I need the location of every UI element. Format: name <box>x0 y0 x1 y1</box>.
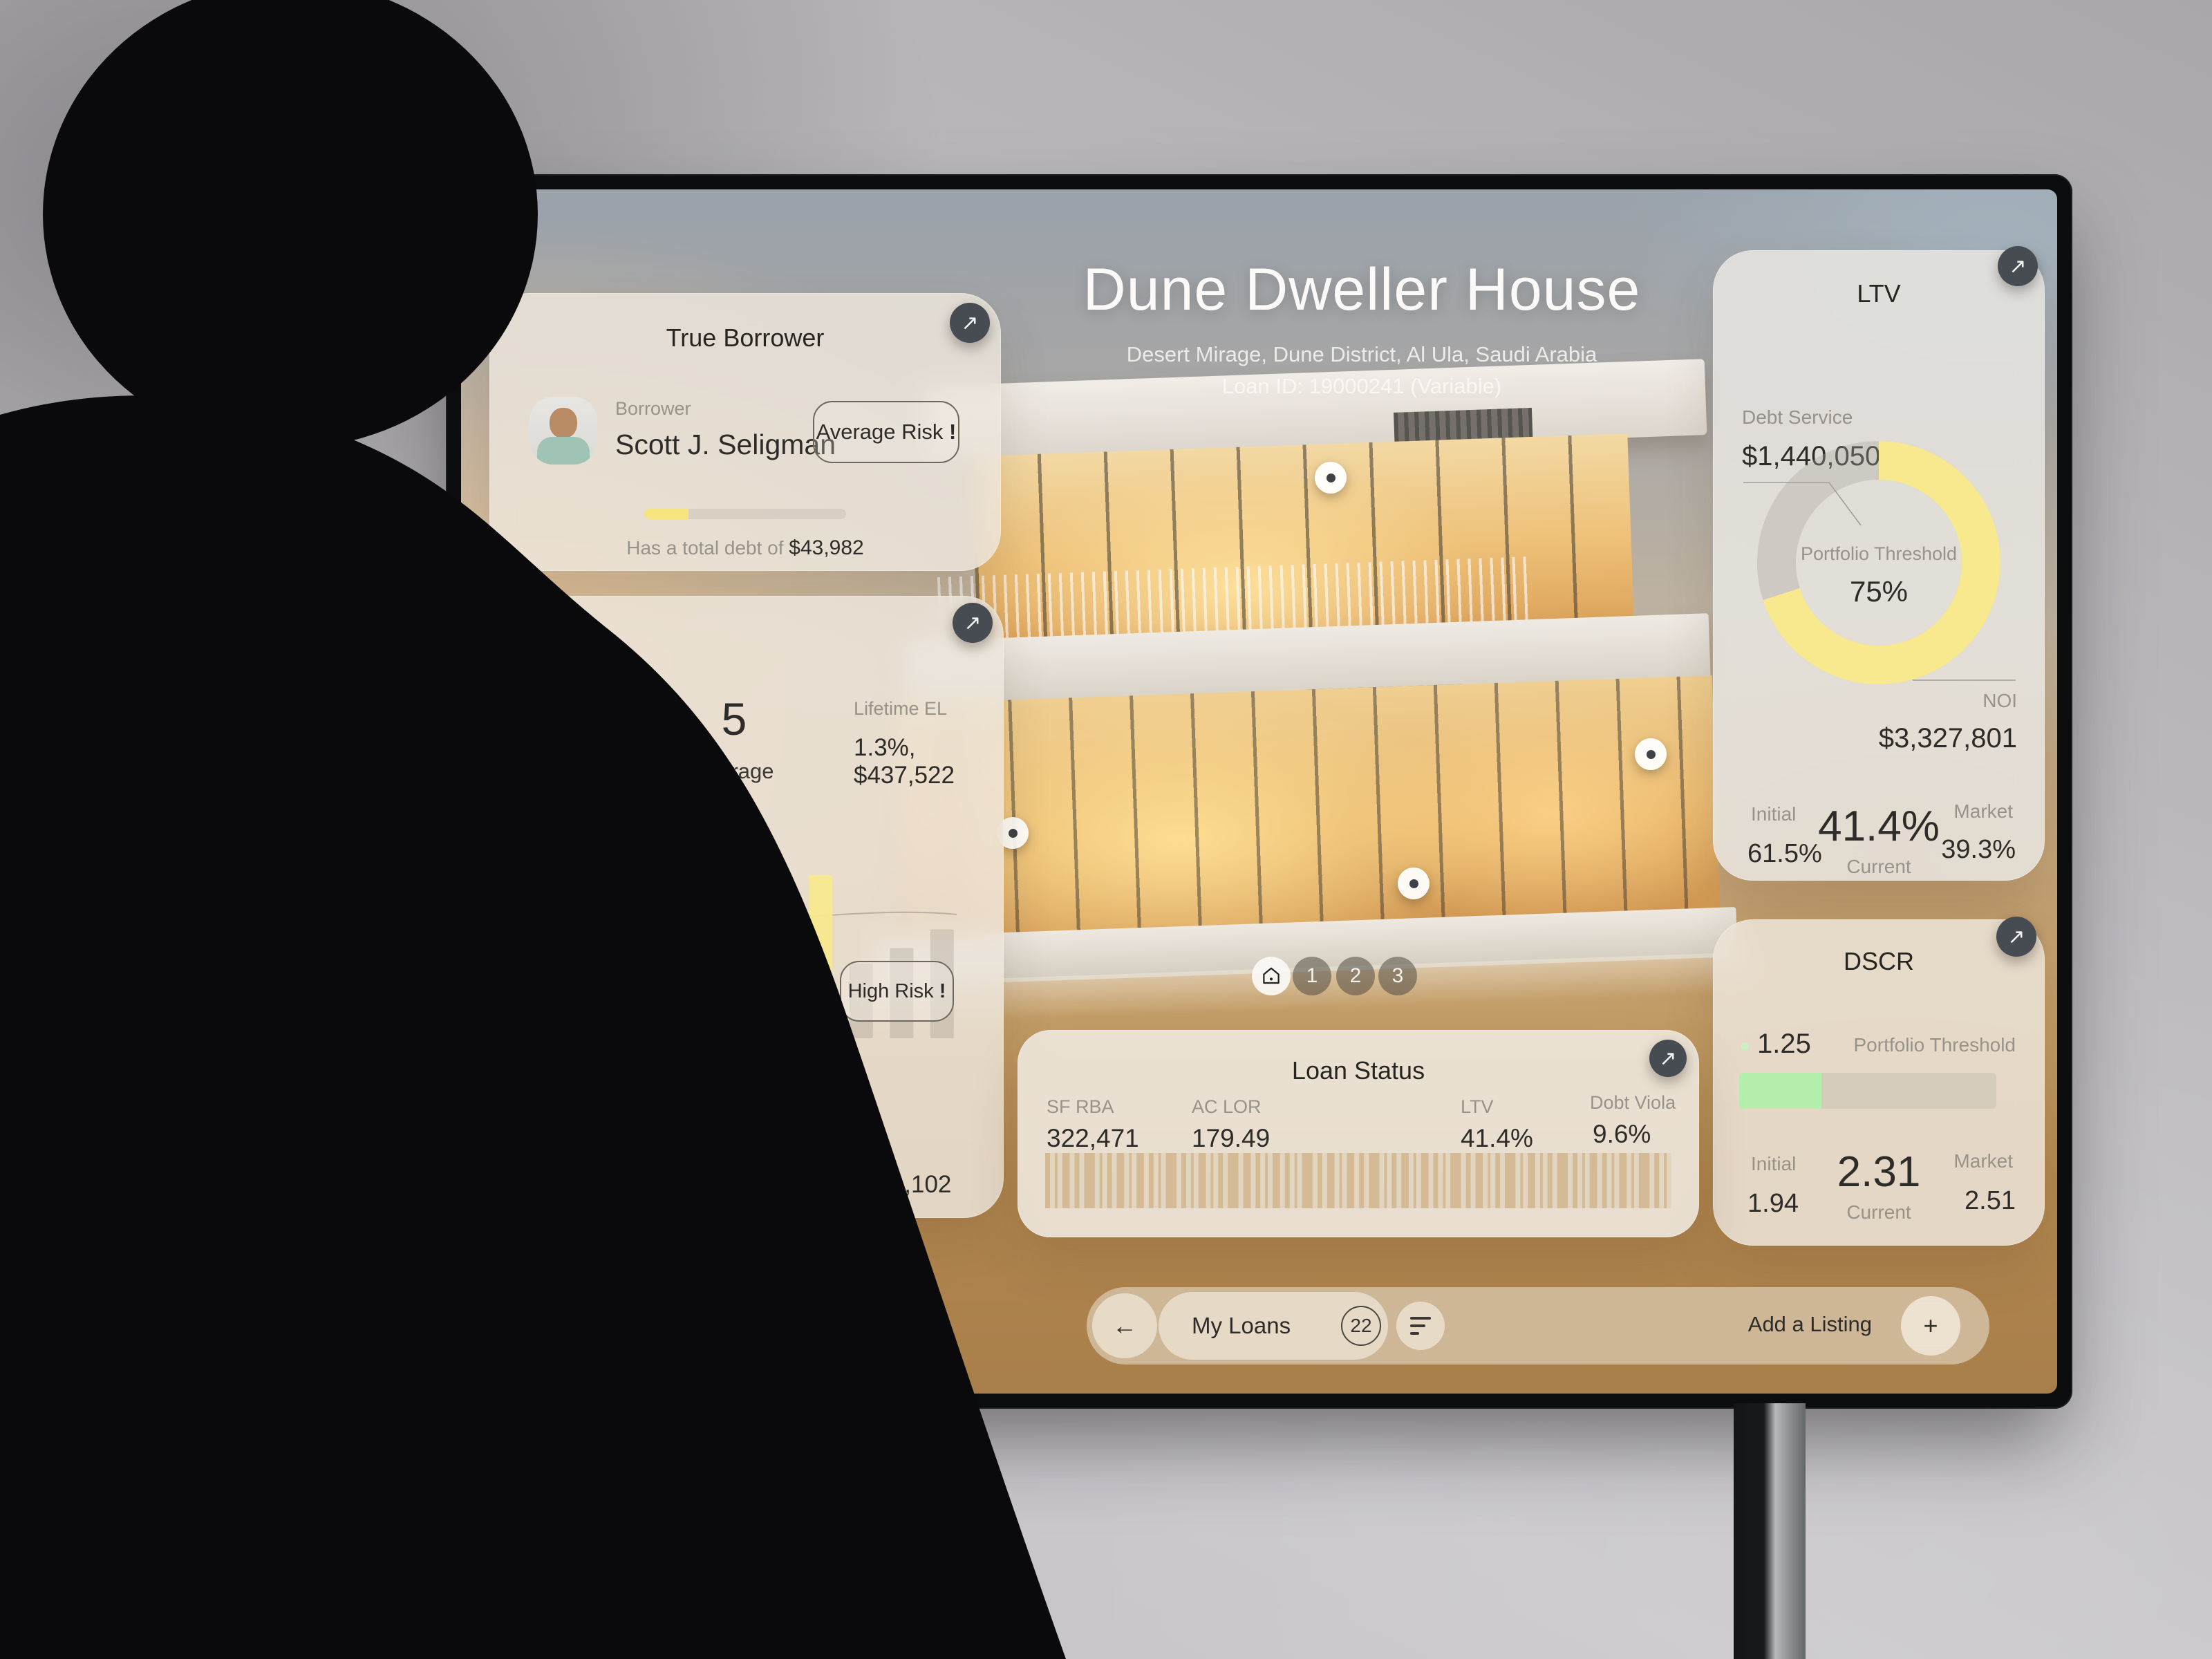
person-silhouette <box>0 0 2212 1659</box>
photo-scene: Dune Dweller House Desert Mirage, Dune D… <box>0 0 2212 1659</box>
